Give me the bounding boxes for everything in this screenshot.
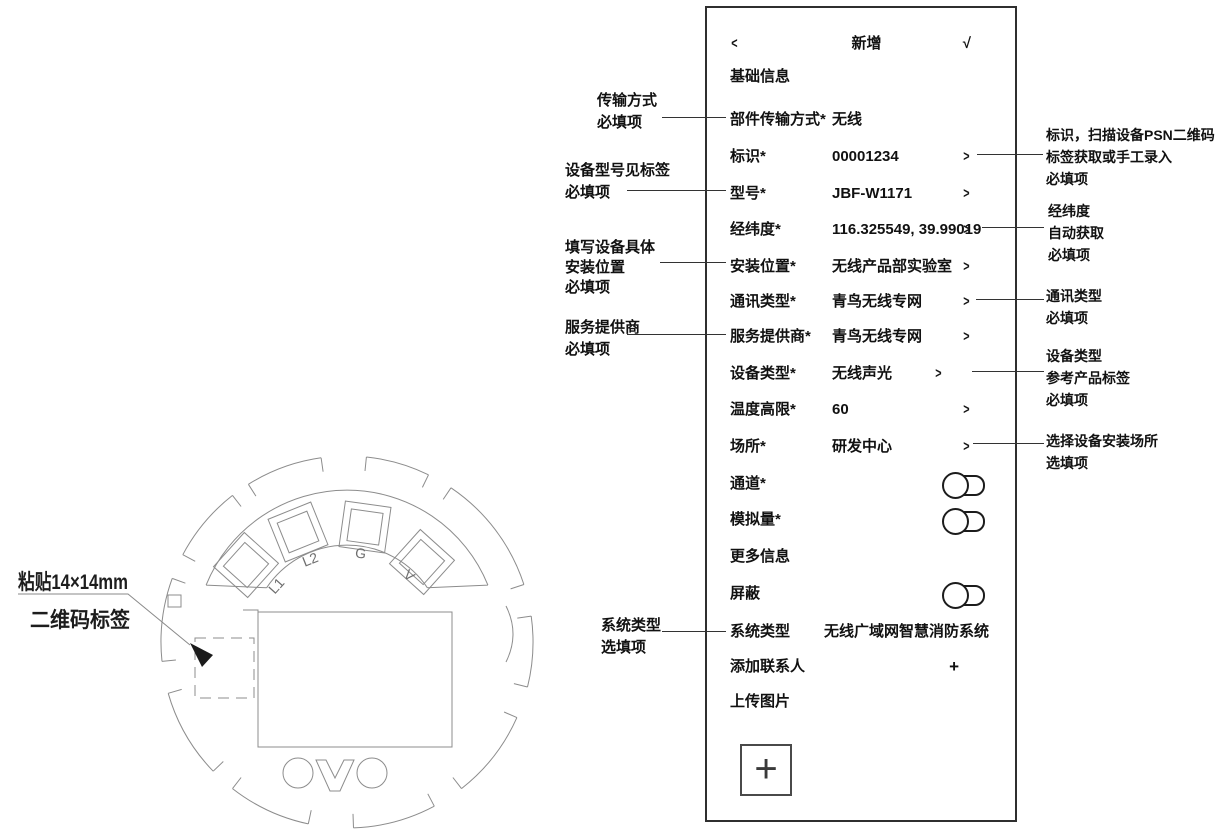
qr-note-arrowhead <box>190 643 213 667</box>
chevron-right-icon: > <box>963 183 969 205</box>
field-label: 温度高限* <box>730 399 796 421</box>
callout-transmission-mode: 传输方式 必填项 <box>597 90 657 134</box>
row-transmission-mode: 部件传输方式* 无线 <box>730 109 1003 131</box>
section-basic-info: 基础信息 <box>730 66 1003 88</box>
field-label: 模拟量* <box>730 509 781 531</box>
callout-text: 必填项 <box>1046 168 1215 190</box>
toggle-knob <box>942 508 969 535</box>
row-install-location[interactable]: 安装位置* 无线产品部实验室 > <box>730 256 1003 278</box>
callout-device-type: 设备类型 参考产品标签 必填项 <box>1046 345 1130 411</box>
field-label: 部件传输方式* <box>730 109 826 131</box>
callout-text: 自动获取 <box>1048 222 1104 244</box>
callout-line <box>662 631 726 632</box>
field-label: 通道* <box>730 473 766 495</box>
chevron-right-icon: > <box>963 219 969 241</box>
terminal-label-l1: L1 <box>265 574 287 596</box>
callout-site: 选择设备安装场所 选填项 <box>1046 430 1158 474</box>
row-channel: 通道* <box>730 473 1003 495</box>
plus-icon: + <box>949 656 959 678</box>
terminal-label-g: G <box>354 544 367 561</box>
qr-note-line2: 二维码标签 <box>30 608 131 632</box>
upload-image-button[interactable]: + <box>740 744 792 796</box>
callout-model: 设备型号见标签 必填项 <box>565 160 670 204</box>
inner-tab-hook <box>506 606 513 662</box>
terminal-V <box>390 530 455 595</box>
row-model[interactable]: 型号* JBF-W1171 > <box>730 183 1003 205</box>
field-label: 场所* <box>730 436 766 458</box>
confirm-button[interactable]: √ <box>963 33 971 55</box>
field-label: 服务提供商* <box>730 326 811 348</box>
row-coordinates[interactable]: 经纬度* 116.325549, 39.99019 > <box>730 219 1003 241</box>
callout-line <box>660 262 726 263</box>
chevron-right-icon: > <box>963 399 969 421</box>
callout-text: 传输方式 <box>597 90 657 112</box>
callout-text: 系统类型 <box>601 615 661 637</box>
field-value: 60 <box>832 399 849 421</box>
callout-line <box>972 371 1044 372</box>
form-header: < 新增 √ <box>730 33 1003 55</box>
callout-text: 安装位置 <box>565 258 655 278</box>
chevron-right-icon: > <box>963 146 969 168</box>
channel-toggle[interactable] <box>947 475 985 496</box>
field-value: 116.325549, 39.99019 <box>832 219 981 241</box>
callout-text: 标签获取或手工录入 <box>1046 146 1215 168</box>
row-site[interactable]: 场所* 研发中心 > <box>730 436 1003 458</box>
field-value: 无线声光 <box>832 363 892 385</box>
terminal-L2 <box>268 502 328 562</box>
field-value: 青鸟无线专网 <box>832 326 922 348</box>
row-identifier[interactable]: 标识* 00001234 > <box>730 146 1003 168</box>
callout-text: 必填项 <box>1048 244 1104 266</box>
section-upload-image: 上传图片 <box>730 691 1003 713</box>
callout-service-provider: 服务提供商 必填项 <box>565 317 640 361</box>
callout-line <box>627 334 726 335</box>
field-label: 设备类型* <box>730 363 796 385</box>
row-analog: 模拟量* <box>730 509 1003 531</box>
chevron-right-icon: > <box>963 256 969 278</box>
callout-text: 标识，扫描设备PSN二维码 <box>1046 124 1215 146</box>
callout-line <box>973 443 1044 444</box>
row-comm-type[interactable]: 通讯类型* 青鸟无线专网 > <box>730 291 1003 313</box>
callout-install-location: 填写设备具体 安装位置 必填项 <box>565 238 655 298</box>
field-value: 无线广域网智慧消防系统 <box>824 621 989 643</box>
mount-hole-right <box>357 758 387 788</box>
plus-icon: + <box>754 747 777 791</box>
chevron-right-icon: > <box>963 326 969 348</box>
label-corner-mark <box>243 610 258 626</box>
callout-text: 必填项 <box>565 339 640 361</box>
callout-text: 服务提供商 <box>565 317 640 339</box>
callout-comm-type: 通讯类型 必填项 <box>1046 285 1102 329</box>
ring-notches <box>162 457 531 828</box>
analog-toggle[interactable] <box>947 511 985 532</box>
section-more-info: 更多信息 <box>730 546 1003 568</box>
section-label: 更多信息 <box>730 546 790 568</box>
section-label: 基础信息 <box>730 66 790 88</box>
callout-line <box>627 190 726 191</box>
add-device-form: < 新增 √ 基础信息 部件传输方式* 无线 标识* 00001234 > 型号… <box>705 6 1017 822</box>
callout-text: 必填项 <box>1046 389 1130 411</box>
row-system-type: 系统类型 无线广域网智慧消防系统 <box>730 621 1003 643</box>
callout-text: 必填项 <box>1046 307 1102 329</box>
callout-line <box>662 117 726 118</box>
section-label: 上传图片 <box>730 691 790 713</box>
inner-tab-rect <box>168 595 181 607</box>
row-service-provider[interactable]: 服务提供商* 青鸟无线专网 > <box>730 326 1003 348</box>
field-label: 安装位置* <box>730 256 796 278</box>
callout-text: 设备类型 <box>1046 345 1130 367</box>
shield-toggle[interactable] <box>947 585 985 606</box>
callout-text: 必填项 <box>597 112 657 134</box>
callout-system-type: 系统类型 选填项 <box>601 615 661 659</box>
qr-note-line1: 粘贴14×14mm <box>18 570 128 594</box>
callout-text: 必填项 <box>565 182 670 204</box>
callout-line <box>976 299 1044 300</box>
callout-line <box>982 227 1044 228</box>
field-label: 标识* <box>730 146 766 168</box>
field-value: JBF-W1171 <box>832 183 912 205</box>
chevron-right-icon: > <box>963 436 969 458</box>
base-outer-ring <box>161 457 533 828</box>
qr-label-placement-box <box>195 638 254 698</box>
callout-text: 必填项 <box>565 278 655 298</box>
row-add-contact[interactable]: 添加联系人 + <box>730 656 1003 678</box>
field-value: 无线 <box>832 109 862 131</box>
terminal-label-l2: L2 <box>300 549 321 570</box>
field-value: 研发中心 <box>832 436 892 458</box>
field-label: 屏蔽 <box>730 583 760 605</box>
callout-text: 设备型号见标签 <box>565 160 670 182</box>
field-label: 系统类型 <box>730 621 790 643</box>
chevron-right-icon: > <box>935 363 941 385</box>
label-area-rect <box>258 612 452 747</box>
field-label: 型号* <box>730 183 766 205</box>
row-shield: 屏蔽 <box>730 583 1003 605</box>
callout-text: 通讯类型 <box>1046 285 1102 307</box>
callout-text: 经纬度 <box>1048 200 1104 222</box>
callout-identifier: 标识，扫描设备PSN二维码 标签获取或手工录入 必填项 <box>1046 124 1215 190</box>
callout-line <box>977 154 1043 155</box>
callout-text: 选填项 <box>1046 452 1158 474</box>
callout-text: 选择设备安装场所 <box>1046 430 1158 452</box>
field-label: 添加联系人 <box>730 656 805 678</box>
toggle-knob <box>942 582 969 609</box>
field-label: 通讯类型* <box>730 291 796 313</box>
row-temp-limit[interactable]: 温度高限* 60 > <box>730 399 1003 421</box>
field-value: 无线产品部实验室 <box>832 256 952 278</box>
field-label: 经纬度* <box>730 219 781 241</box>
callout-coordinates: 经纬度 自动获取 必填项 <box>1048 200 1104 266</box>
callout-text: 填写设备具体 <box>565 238 655 258</box>
device-base-drawing: L1 L2 G V 粘贴14×14mm 二维码标签 <box>0 440 560 831</box>
chevron-mark <box>316 760 354 791</box>
callout-text: 选填项 <box>601 637 661 659</box>
mount-hole-left <box>283 758 313 788</box>
field-value: 青鸟无线专网 <box>832 291 922 313</box>
field-value: 00001234 <box>832 146 899 168</box>
callout-text: 参考产品标签 <box>1046 367 1130 389</box>
row-device-type[interactable]: 设备类型* 无线声光 > <box>730 363 1003 385</box>
toggle-knob <box>942 472 969 499</box>
chevron-right-icon: > <box>963 291 969 313</box>
